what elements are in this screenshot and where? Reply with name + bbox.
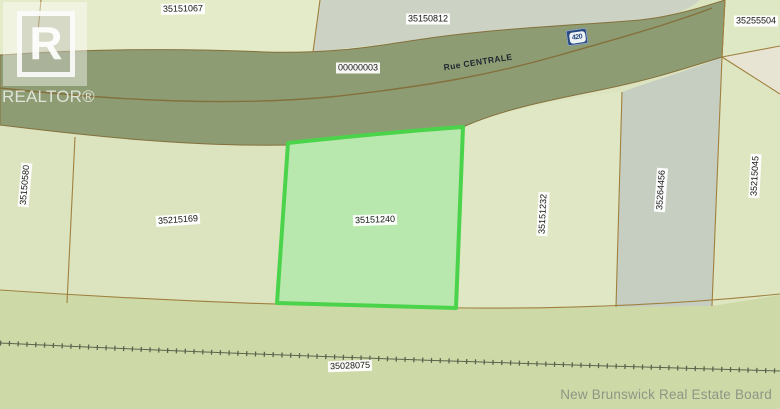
route-shield-number: 420 — [568, 30, 585, 43]
parcel-label-00000003: 00000003 — [336, 63, 380, 74]
parcel-label-35151067: 35151067 — [161, 3, 205, 15]
route-shield: 420 — [565, 28, 588, 47]
parcel-label-35150812: 35150812 — [406, 14, 450, 25]
attribution-text: New Brunswick Real Estate Board — [560, 387, 772, 402]
parcel-label-35028075: 35028075 — [328, 360, 372, 373]
parcel-map: 3515106735150812352555040000000335150580… — [0, 0, 780, 409]
parcel-label-35215045: 35215045 — [748, 154, 761, 199]
parcel-label-35255504: 35255504 — [734, 16, 778, 27]
parcel-label-35151232: 35151232 — [536, 192, 549, 237]
parcel-area-35264456 — [616, 57, 722, 307]
parcel-label-35151240: 35151240 — [353, 214, 397, 227]
